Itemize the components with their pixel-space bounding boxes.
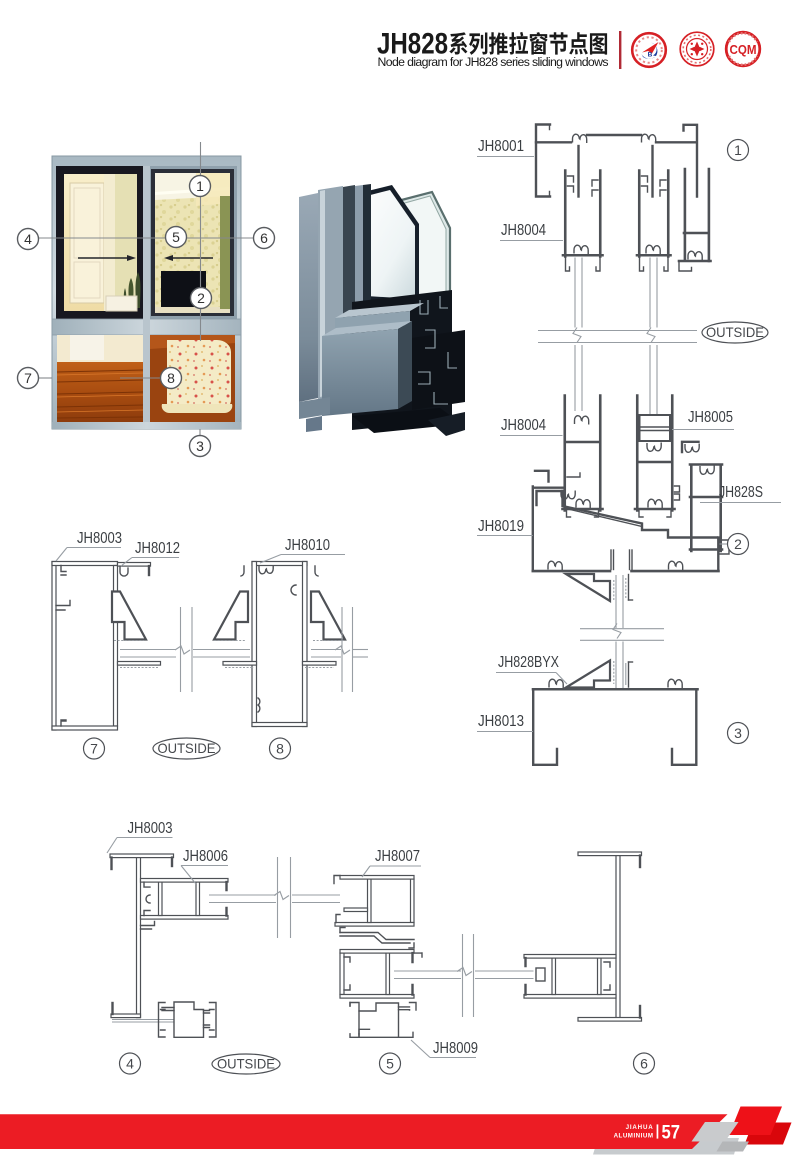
svg-text:5: 5 <box>172 229 180 245</box>
svg-text:JH8009: JH8009 <box>433 1040 478 1057</box>
svg-text:8: 8 <box>276 741 284 757</box>
svg-text:OUTSIDE: OUTSIDE <box>158 740 216 756</box>
svg-text:JH8005: JH8005 <box>688 409 733 426</box>
svg-text:OUTSIDE: OUTSIDE <box>706 324 764 340</box>
svg-text:7: 7 <box>90 741 98 757</box>
svg-text:B: B <box>648 52 653 59</box>
svg-text:JH8001: JH8001 <box>478 138 524 155</box>
svg-text:2: 2 <box>734 536 742 552</box>
svg-text:8: 8 <box>167 370 175 386</box>
svg-text:JH8019: JH8019 <box>478 518 524 535</box>
svg-text:JIAHUA: JIAHUA <box>626 1124 654 1131</box>
svg-text:JH8004: JH8004 <box>501 417 546 434</box>
svg-text:JH8003: JH8003 <box>128 820 173 837</box>
svg-text:Node diagram for JH828 series: Node diagram for JH828 series sliding wi… <box>378 55 609 69</box>
svg-text:OUTSIDE: OUTSIDE <box>217 1056 275 1072</box>
svg-text:JH8003: JH8003 <box>77 530 122 547</box>
svg-text:1: 1 <box>734 142 742 158</box>
svg-text:ALUMINIUM: ALUMINIUM <box>614 1133 654 1140</box>
svg-text:JH8007: JH8007 <box>375 848 420 865</box>
svg-text:57: 57 <box>662 1123 681 1144</box>
svg-text:JH8013: JH8013 <box>478 713 524 730</box>
svg-text:3: 3 <box>734 725 742 741</box>
svg-text:JH8004: JH8004 <box>501 222 546 239</box>
svg-text:6: 6 <box>260 230 268 246</box>
svg-text:4: 4 <box>24 231 32 247</box>
svg-text:3: 3 <box>196 438 204 454</box>
svg-text:6: 6 <box>640 1056 648 1072</box>
svg-text:5: 5 <box>386 1056 394 1072</box>
svg-text:2: 2 <box>197 290 205 306</box>
svg-text:JH828S: JH828S <box>719 484 763 501</box>
svg-text:1: 1 <box>196 178 204 194</box>
svg-text:JH8012: JH8012 <box>135 540 180 557</box>
svg-text:JH8010: JH8010 <box>285 537 330 554</box>
svg-text:4: 4 <box>126 1056 134 1072</box>
svg-text:CQM: CQM <box>730 43 757 57</box>
svg-text:JH828BYX: JH828BYX <box>498 654 560 671</box>
svg-text:JH8006: JH8006 <box>183 848 228 865</box>
svg-text:7: 7 <box>24 370 32 386</box>
